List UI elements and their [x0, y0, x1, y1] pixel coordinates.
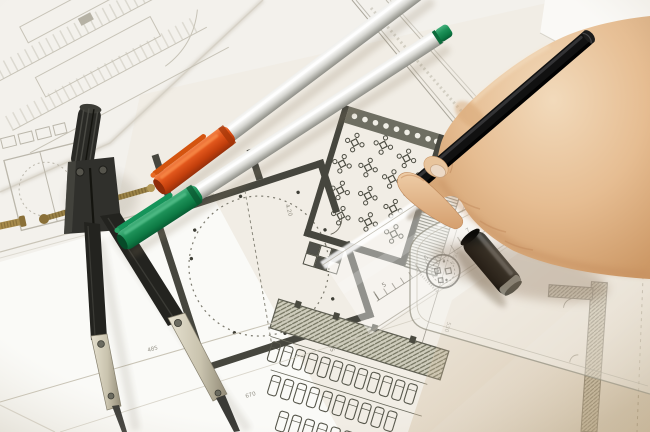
photo-vignette: [0, 0, 650, 432]
photo-architect-workspace: 4.20 4.05: [0, 0, 650, 432]
